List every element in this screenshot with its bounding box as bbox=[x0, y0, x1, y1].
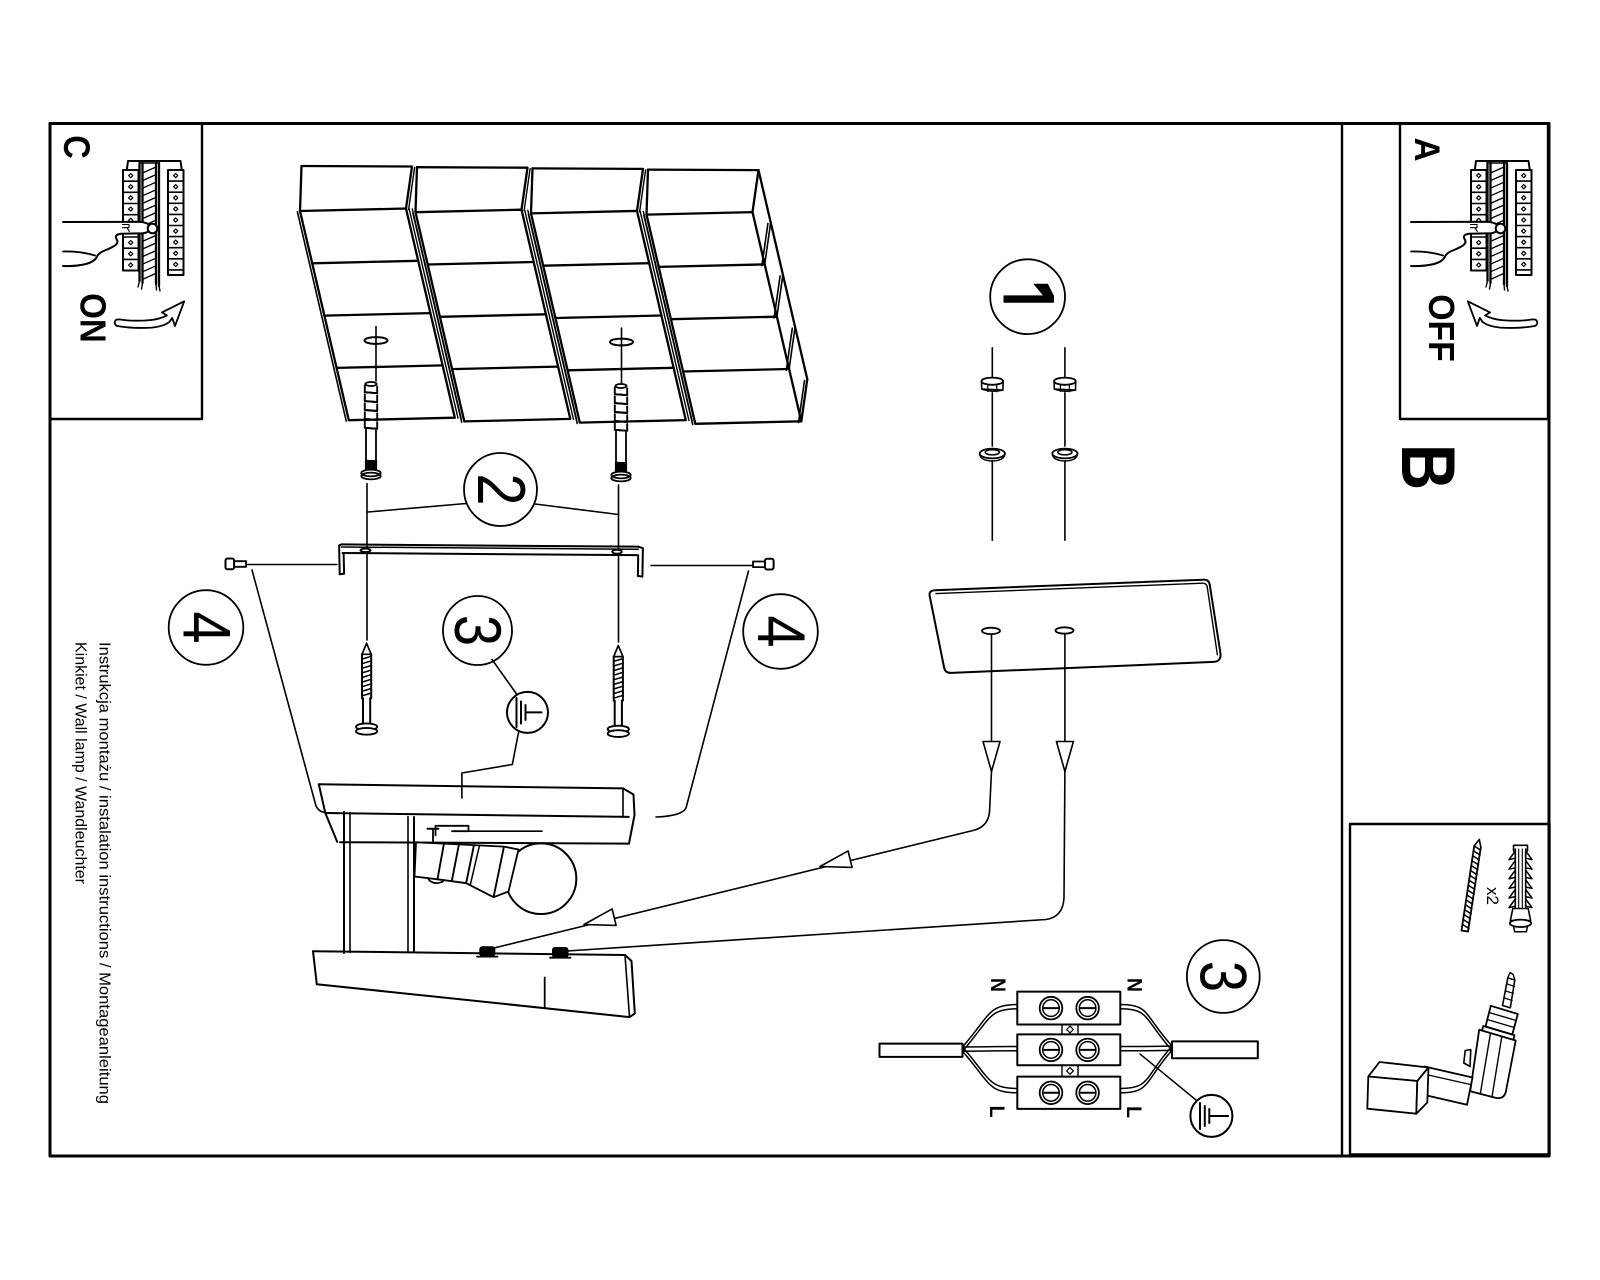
svg-text:A: A bbox=[1407, 137, 1446, 161]
svg-text:ON: ON bbox=[72, 293, 112, 343]
svg-text:N: N bbox=[1122, 978, 1146, 992]
svg-text:3: 3 bbox=[1187, 961, 1260, 992]
svg-text:Kinkiet / Wall lamp / Wandleuc: Kinkiet / Wall lamp / Wandleuchter bbox=[72, 642, 89, 885]
svg-text:Instrukcja montażu / instalati: Instrukcja montażu / instalation instruc… bbox=[96, 642, 113, 1104]
svg-text:2: 2 bbox=[463, 473, 538, 505]
svg-text:L: L bbox=[985, 1106, 1009, 1118]
svg-text:N: N bbox=[986, 978, 1010, 992]
svg-text:x2: x2 bbox=[1483, 887, 1502, 905]
svg-text:OFF: OFF bbox=[1421, 294, 1461, 362]
svg-text:L: L bbox=[1122, 1106, 1146, 1118]
svg-text:3: 3 bbox=[441, 615, 514, 646]
svg-text:C: C bbox=[56, 135, 97, 159]
svg-text:B: B bbox=[1386, 444, 1472, 490]
svg-text:4: 4 bbox=[168, 611, 243, 643]
svg-text:4: 4 bbox=[743, 615, 818, 647]
